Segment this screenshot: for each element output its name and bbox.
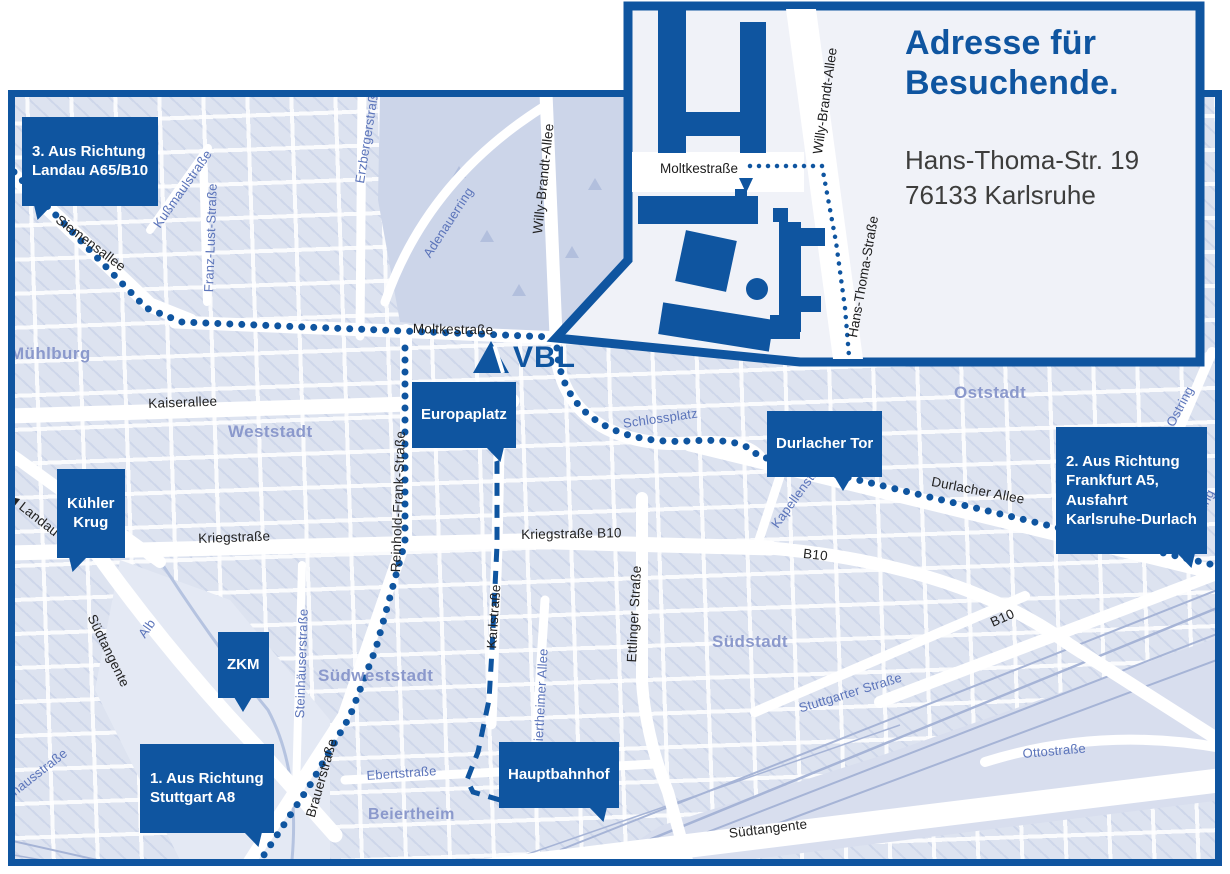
callout-kuehler-krug-label: Kühler Krug — [67, 495, 115, 531]
street-label-kriegstrasse-b10: Kriegstraße B10 — [521, 525, 622, 542]
street-label-franz-lust-strasse: Franz-Lust-Straße — [201, 183, 220, 292]
street-label-kaiserallee: Kaiserallee — [148, 394, 217, 411]
callout-route3: 3. Aus Richtung Landau A65/B10 — [22, 117, 158, 206]
inset-address: Hans-Thoma-Str. 19 76133 Karlsruhe — [905, 143, 1139, 213]
district-label-beiertheim: Beiertheim — [368, 806, 455, 824]
callout-hauptbahnhof-label: Hauptbahnhof — [508, 766, 610, 783]
vbl-directions-map: Siemensallee Kaiserallee Moltkestraße Kr… — [0, 0, 1230, 874]
street-label-steinhaeuserstrasse: Steinhäuserstraße — [292, 608, 311, 718]
callout-europaplatz-label: Europaplatz — [421, 406, 507, 423]
street-label-ettlinger-strasse: Ettlinger Straße — [624, 565, 644, 663]
district-label-weststadt: Weststadt — [228, 422, 313, 442]
callout-route1-label: 1. Aus Richtung Stuttgart A8 — [150, 770, 264, 806]
callout-tail — [834, 476, 852, 491]
street-label-karlstrasse: Karlstraße — [484, 584, 503, 649]
street-label-durlacher-allee: Durlacher Allee — [930, 474, 1026, 507]
callout-hauptbahnhof: Hauptbahnhof — [499, 742, 619, 808]
callout-route1: 1. Aus Richtung Stuttgart A8 — [140, 744, 274, 833]
callout-durlacher-tor-label: Durlacher Tor — [776, 435, 873, 452]
street-label-suedtangente-west: Südtangente — [85, 612, 133, 689]
district-label-muehlburg: Mühlburg — [10, 344, 91, 364]
vbl-triangle-icon — [473, 341, 509, 373]
street-label-siemensallee: Siemensallee — [53, 212, 129, 274]
street-label-ottostrasse: Ottostraße — [1022, 740, 1086, 760]
district-label-suedstadt: Südstadt — [712, 632, 788, 652]
inset-title: Adresse für Besuchende. — [905, 24, 1215, 104]
street-label-moltkestrasse: Moltkestraße — [413, 321, 494, 337]
street-label-ostring-nord: Ostring — [1163, 384, 1197, 429]
street-label-adenauerring: Adenauerring — [420, 185, 476, 261]
callout-route2: 2. Aus Richtung Frankfurt A5, Ausfahrt K… — [1056, 427, 1207, 554]
callout-tail — [234, 697, 252, 712]
callout-durlacher-tor: Durlacher Tor — [767, 411, 882, 477]
street-label-willy-brandt-allee: Willy-Brandt-Allee — [530, 123, 557, 235]
vbl-logo: VBL — [473, 341, 576, 373]
callout-route3-label: 3. Aus Richtung Landau A65/B10 — [32, 143, 148, 179]
district-label-suedweststadt: Südweststadt — [318, 666, 433, 686]
street-label-pulverhausstrasse: Pulverhausstraße — [8, 745, 70, 822]
vbl-logo-text: VBL — [513, 343, 576, 373]
district-label-oststadt: Oststadt — [954, 383, 1026, 403]
street-label-kriegstrasse: Kriegstraße — [198, 528, 270, 546]
street-label-ebertstrasse: Ebertstraße — [366, 763, 437, 783]
street-label-brauerstrasse: Brauerstraße — [303, 737, 340, 819]
callout-europaplatz: Europaplatz — [412, 382, 516, 448]
street-label-schlossplatz: Schlossplatz — [622, 406, 699, 431]
callout-route2-label: 2. Aus Richtung Frankfurt A5, Ausfahrt K… — [1066, 453, 1197, 528]
callout-kuehler-krug: Kühler Krug — [57, 469, 125, 558]
street-label-erzbergerstrasse: Erzbergerstraße — [352, 90, 382, 184]
inset-label-moltkestrasse: Moltkestraße — [660, 161, 738, 176]
street-label-suedtangente-sued: Südtangente — [728, 816, 808, 840]
callout-zkm-label: ZKM — [227, 656, 260, 673]
street-label-b10-ost: B10 — [988, 606, 1017, 630]
street-label-b10-mitte: B10 — [802, 546, 828, 563]
callout-zkm: ZKM — [218, 632, 269, 698]
street-label-reinhold-frank-strasse: Reinhold-Frank-Straße — [388, 431, 408, 573]
street-label-alb: Alb — [135, 616, 158, 640]
street-label-stuttgarter-strasse: Stuttgarter Straße — [797, 670, 904, 716]
